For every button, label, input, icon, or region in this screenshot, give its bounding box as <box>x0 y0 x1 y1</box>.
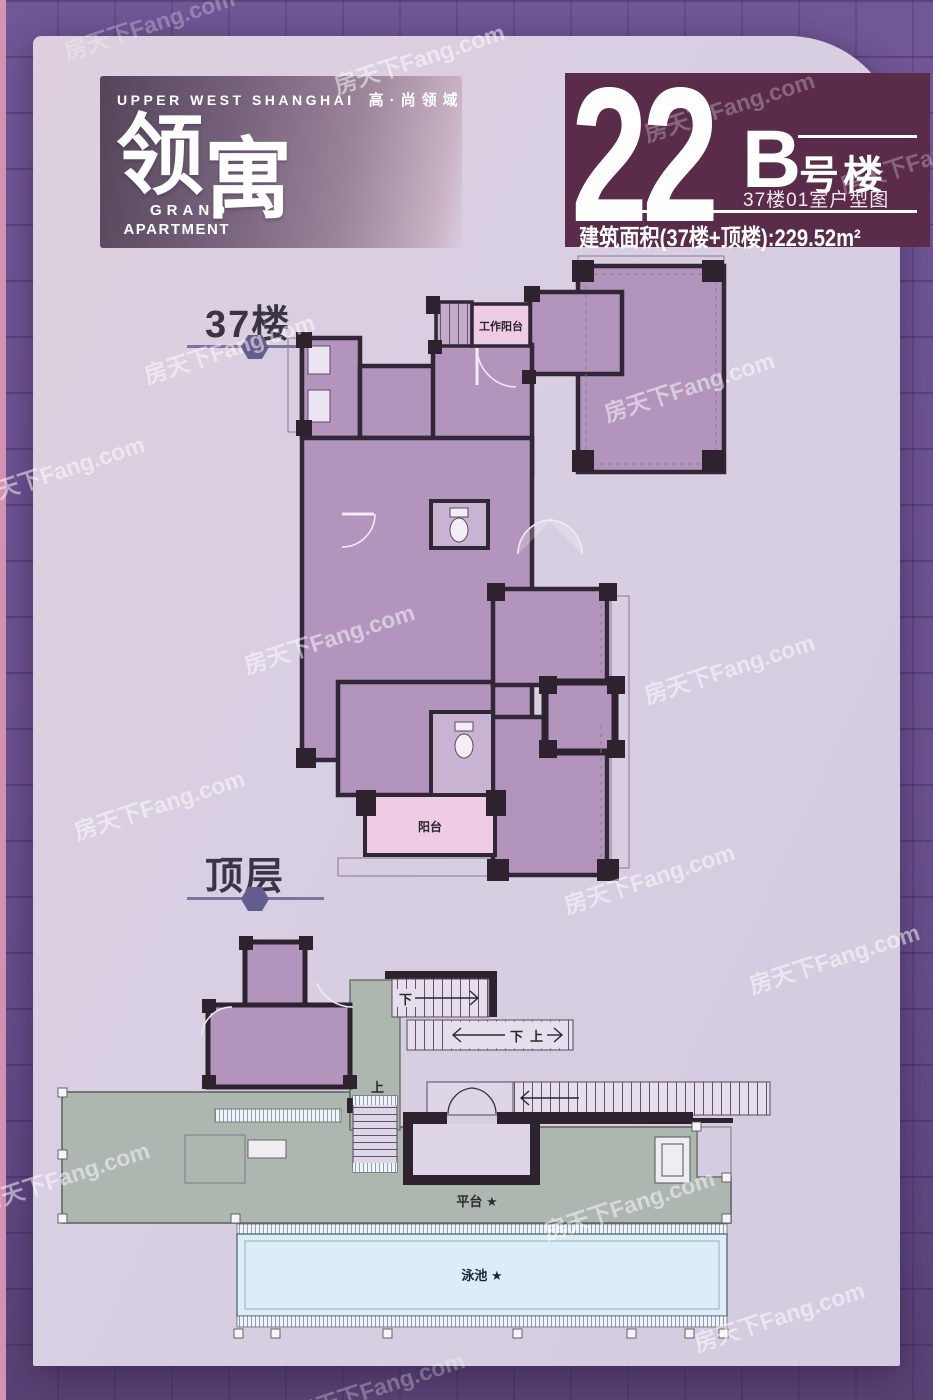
logo-subtitle: GRAND APARTMENT <box>118 202 230 240</box>
pool-edge-hatch <box>237 1224 727 1234</box>
brand-logo-block: UPPER WEST SHANGHAI高·尚领域 领 寓 GRAND APART… <box>100 76 462 248</box>
entry-strip <box>427 1082 513 1115</box>
left-edge-strip <box>0 0 6 1400</box>
pool-label: 泳池 ★ <box>461 1268 502 1283</box>
section-label-penthouse: 顶层 <box>205 845 285 900</box>
wall <box>385 971 497 979</box>
stair-run <box>353 1096 397 1172</box>
banner-accent-line <box>798 135 917 138</box>
balcony-label: 阳台 <box>418 819 442 834</box>
platform-label: 平台 ★ <box>456 1194 497 1209</box>
room <box>530 292 622 374</box>
room <box>360 366 434 438</box>
banner-divider <box>579 210 917 213</box>
logo-character-1: 领 <box>116 112 204 200</box>
poster: UPPER WEST SHANGHAI高·尚领域 领 寓 GRAND APART… <box>0 0 933 1400</box>
bedroom <box>493 589 607 685</box>
brand-tagline-cn: 高·尚领域 <box>369 92 464 109</box>
room <box>208 1005 350 1087</box>
closet <box>436 302 472 346</box>
stair-cap <box>353 1096 397 1105</box>
wall <box>489 971 497 1017</box>
work-balcony-label: 工作阳台 <box>479 319 523 333</box>
logo-subtitle-line2: APARTMENT <box>118 221 230 240</box>
pool-edge-hatch <box>237 1316 727 1327</box>
pool-posts <box>234 1329 728 1338</box>
rail-outline <box>697 1127 731 1177</box>
unit-subtitle: 37楼01室户型图 <box>743 185 889 212</box>
stair2-down-label: 下 <box>510 1029 523 1044</box>
logo-subtitle-line1: GRAND <box>118 202 230 221</box>
vestibule <box>413 1124 530 1175</box>
unit-banner: 22 B 号楼 37楼01室户型图 建筑面积(37楼+顶楼):229.52m² <box>565 73 930 247</box>
floorplan-penthouse: 平台 ★ 下 下 上 <box>55 925 845 1365</box>
rooms-37 <box>302 266 724 875</box>
stair3-up-label: 上 <box>371 1080 384 1095</box>
hatch-strip <box>215 1109 341 1122</box>
built-area-text: 建筑面积(37楼+顶楼):229.52m² <box>579 218 861 253</box>
room <box>245 942 305 1005</box>
stair-cap <box>353 1163 397 1172</box>
floorplan-37: 工作阳台 阳台 <box>278 252 748 882</box>
planter-box <box>248 1140 286 1158</box>
stair1-down-label: 下 <box>399 992 412 1007</box>
stair2-up-label: 上 <box>530 1029 543 1044</box>
